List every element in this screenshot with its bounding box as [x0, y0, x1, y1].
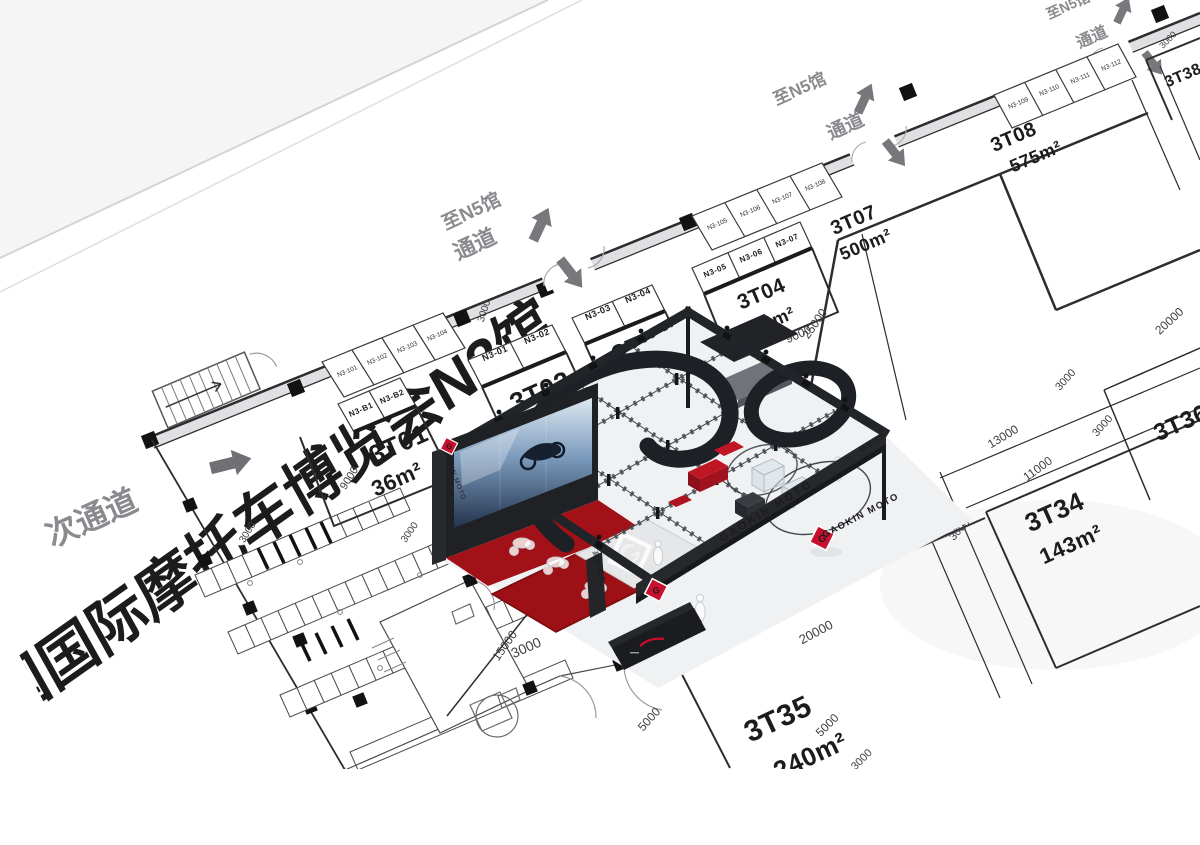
floorplan-canvas: 2021年第十九届中国国际摩托车博览会N3馆 次通道	[0, 0, 1200, 845]
expo-floorplan-page: 2021年第十九届中国国际摩托车博览会N3馆 次通道	[0, 0, 1200, 845]
bottom-white-band	[0, 769, 1200, 845]
screen-left-pillar	[432, 447, 446, 565]
